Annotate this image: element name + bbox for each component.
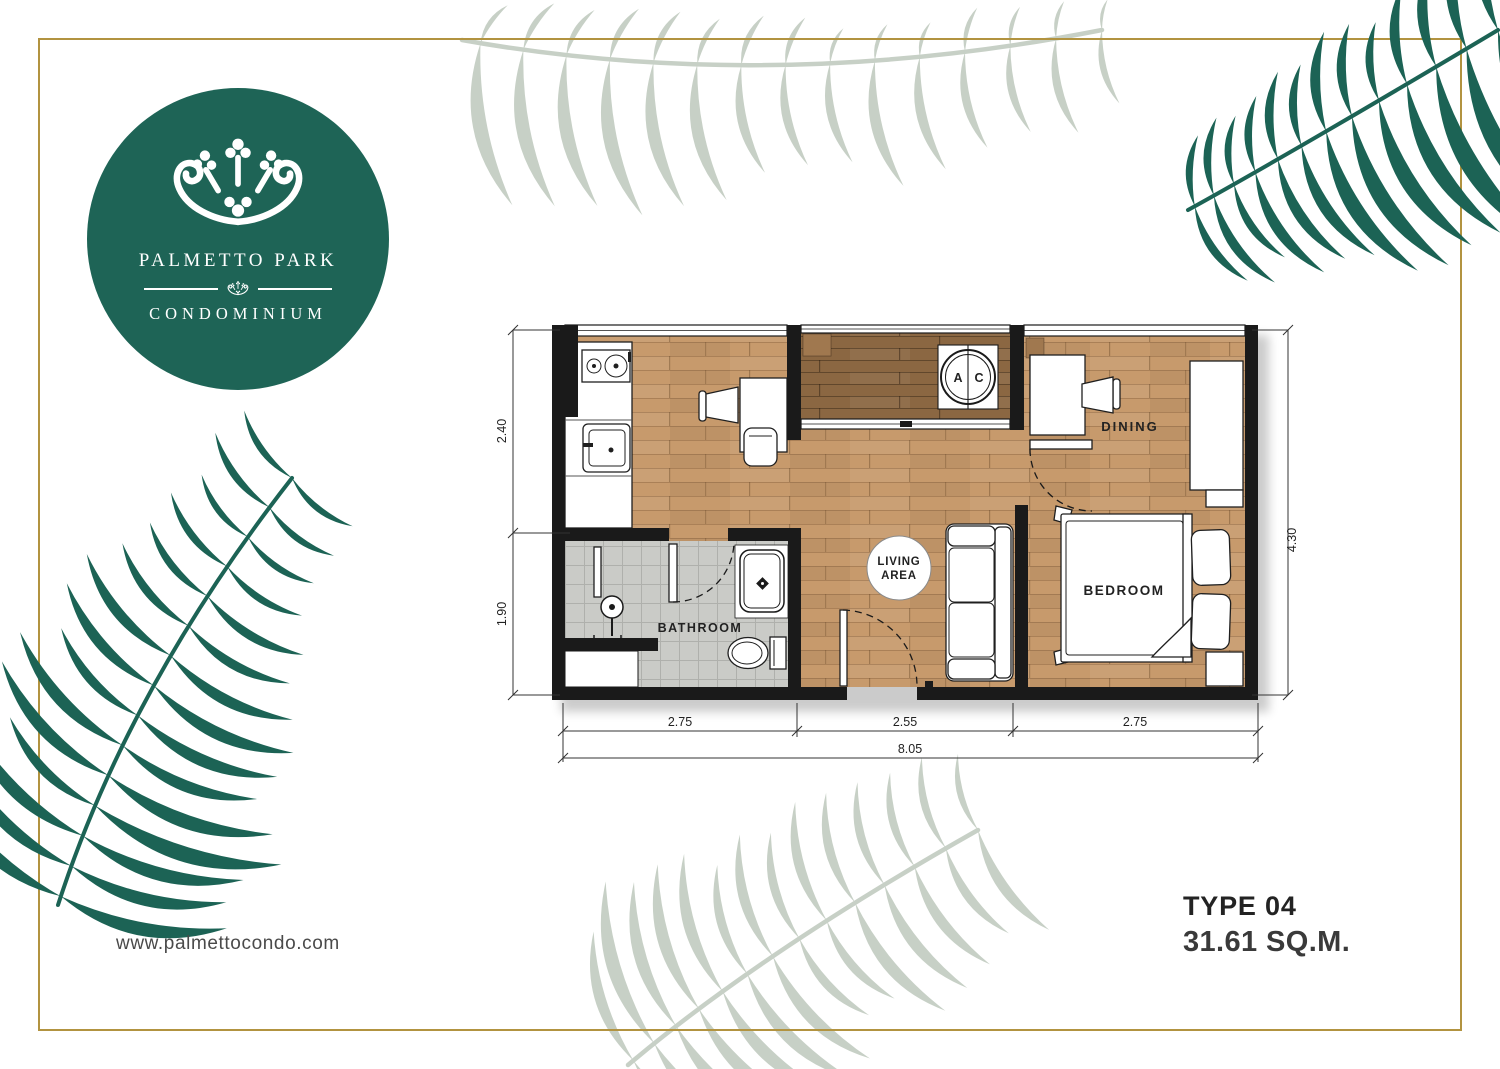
unit-area-label: 31.61 SQ.M. — [1183, 926, 1350, 959]
brand-subname: CONDOMINIUM — [149, 304, 327, 324]
floor-plan: A C — [490, 300, 1310, 770]
bathtub-icon — [735, 545, 788, 618]
wall — [552, 325, 578, 417]
wall — [565, 638, 658, 651]
wall — [917, 687, 1258, 700]
dim-total: 8.05 — [898, 742, 922, 756]
unit-type-label: TYPE 04 — [1183, 891, 1350, 922]
crown-ornament-icon — [156, 132, 320, 236]
wall — [787, 325, 801, 440]
svg-text:AREA: AREA — [881, 570, 917, 582]
ac-unit-icon: A C — [938, 345, 998, 409]
unit-info: TYPE 04 31.61 SQ.M. — [1183, 891, 1350, 959]
balcony-shelf — [803, 334, 831, 356]
mini-crown-icon — [225, 280, 251, 297]
dim-bottom-2: 2.55 — [893, 715, 917, 729]
wall — [552, 687, 847, 700]
sofa — [946, 524, 1013, 681]
brand-name: PALMETTO PARK — [139, 250, 337, 272]
sliding-window — [801, 419, 1010, 429]
stove-icon — [582, 350, 631, 382]
wall — [728, 528, 800, 541]
brand-logo: PALMETTO PARK CONDOMINIUM — [87, 88, 389, 390]
bathroom-door — [669, 544, 677, 602]
bathroom-label: BATHROOM — [658, 621, 743, 635]
window — [565, 325, 787, 336]
logo-divider — [144, 280, 332, 297]
toilet-icon — [728, 637, 786, 669]
divider-line — [258, 288, 332, 290]
dim-left-bottom: 1.90 — [495, 602, 509, 626]
entry-door — [840, 610, 847, 686]
living-area-badge: LIVING AREA — [867, 536, 931, 600]
wall — [1245, 325, 1258, 700]
wall — [1015, 505, 1028, 700]
wall — [1010, 325, 1024, 430]
svg-text:C: C — [974, 371, 983, 385]
dining-table — [1030, 355, 1085, 435]
wardrobe — [1190, 361, 1243, 507]
website-url: www.palmettocondo.com — [116, 933, 340, 955]
window — [1024, 325, 1245, 336]
divider-line — [144, 288, 218, 290]
dim-bottom-3: 2.75 — [1123, 715, 1147, 729]
bedroom-label: BEDROOM — [1084, 583, 1165, 598]
page: PALMETTO PARK CONDOMINIUM — [0, 0, 1500, 1069]
dining-chair — [1082, 377, 1120, 413]
wall — [565, 528, 669, 541]
nightstand — [1206, 652, 1243, 686]
kitchen-sink-icon — [583, 424, 630, 472]
svg-text:LIVING: LIVING — [877, 556, 920, 568]
dim-bottom-1: 2.75 — [668, 715, 692, 729]
dim-right: 4.30 — [1285, 528, 1299, 552]
dim-left-top: 2.40 — [495, 419, 509, 443]
desk-chair — [699, 387, 738, 423]
stool-chair — [744, 428, 777, 466]
dining-label: DINING — [1101, 419, 1159, 434]
wall — [788, 528, 801, 700]
svg-text:A: A — [953, 371, 962, 385]
service-niche — [565, 651, 638, 687]
bedroom-door — [1030, 440, 1092, 449]
balcony-railing — [801, 325, 1010, 333]
threshold — [925, 681, 933, 687]
